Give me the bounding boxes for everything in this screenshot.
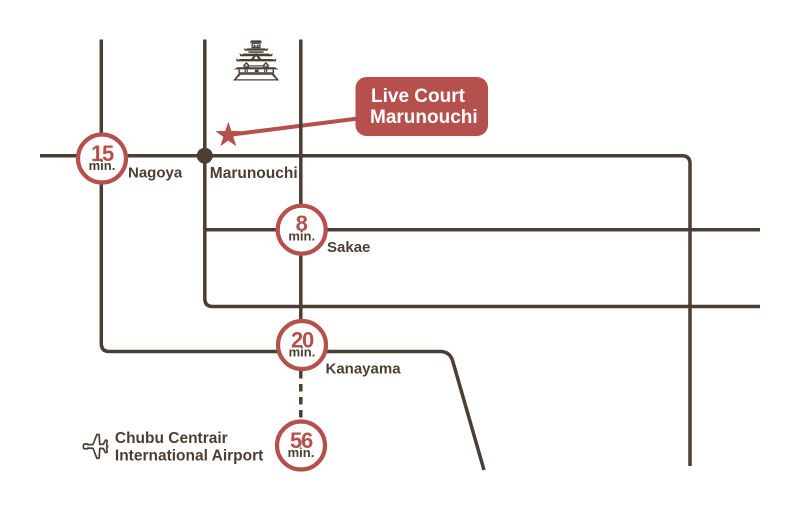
svg-text:min.: min. (89, 158, 116, 173)
svg-text:Live Court: Live Court (371, 86, 466, 107)
svg-text:Sakae: Sakae (327, 239, 370, 256)
svg-text:min.: min. (288, 445, 315, 460)
svg-text:min.: min. (288, 228, 315, 243)
svg-text:Kanayama: Kanayama (326, 361, 402, 378)
svg-text:min.: min. (289, 345, 316, 360)
svg-text:Marunouchi: Marunouchi (370, 107, 478, 128)
svg-text:International Airport: International Airport (115, 447, 263, 464)
svg-text:Chubu Centrair: Chubu Centrair (115, 430, 228, 447)
svg-text:Marunouchi: Marunouchi (210, 165, 298, 182)
svg-text:Nagoya: Nagoya (128, 165, 183, 182)
